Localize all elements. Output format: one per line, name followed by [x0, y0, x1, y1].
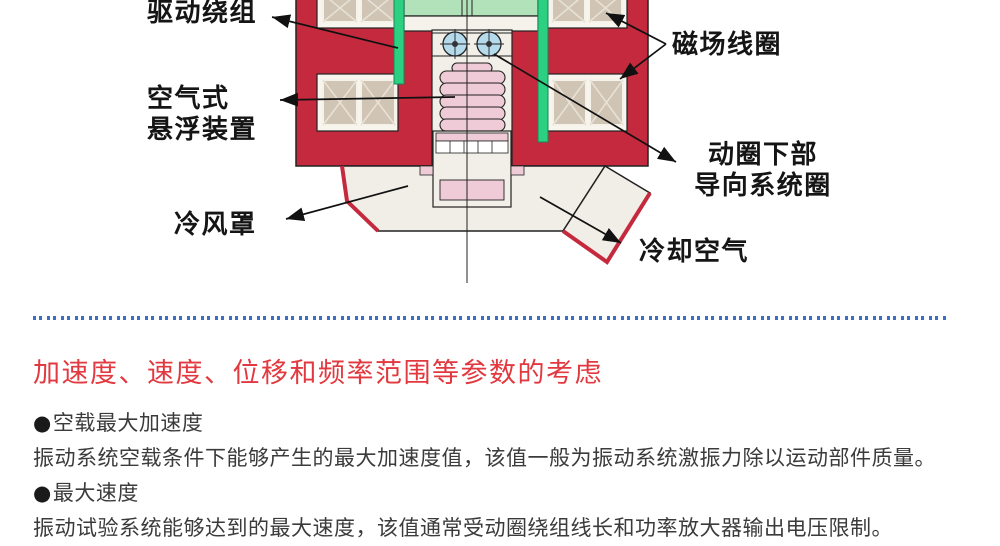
field-coil-box-bottom-right: [547, 74, 627, 131]
bullet-icon: ●: [33, 481, 52, 505]
shaker-diagram-graphic: [0, 0, 1000, 300]
field-coil-box-top-right: [546, 0, 627, 28]
drive-winding-strip-right: [538, 0, 548, 142]
bullet-icon: ●: [33, 411, 52, 435]
label-guide-system-line1: 动圈下部: [692, 140, 834, 171]
field-coil-box-bottom-left: [317, 74, 398, 131]
label-guide-system-line2: 导向系统圈: [692, 171, 834, 202]
item-title-max-velocity: ●最大速度: [33, 476, 968, 511]
label-drive-winding: 驱动绕组: [147, 0, 257, 29]
parameters-section: 加速度、速度、位移和频率范围等参数的考虑 ●空载最大加速度 振动系统空载条件下能…: [33, 356, 968, 546]
shaker-table: [404, 0, 538, 31]
section-heading: 加速度、速度、位移和频率范围等参数的考虑: [33, 356, 968, 392]
item-body-max-velocity: 振动试验系统能够达到的最大速度，该值通常受动圈绕组线长和功率放大器输出电压限制。: [33, 511, 968, 546]
label-guide-system: 动圈下部 导向系统圈: [692, 140, 834, 202]
label-field-coil: 磁场线圈: [672, 30, 782, 61]
drive-winding-strip-left: [394, 0, 404, 84]
label-air-suspension-line2: 悬浮装置: [147, 115, 257, 146]
label-air-suspension: 空气式 悬浮装置: [147, 84, 257, 146]
label-cooling-air: 冷却空气: [639, 237, 749, 268]
item-body-max-acceleration: 振动系统空载条件下能够产生的最大加速度值，该值一般为振动系统激振力除以运动部件质…: [33, 441, 968, 476]
label-air-suspension-line1: 空气式: [147, 84, 257, 115]
item-title-max-acceleration: ●空载最大加速度: [33, 406, 968, 441]
page: 驱动绕组 空气式 悬浮装置 冷风罩 磁场线圈 动圈下部 导向系统圈 冷却空气 加…: [0, 0, 1000, 546]
moving-coil-lower-column: [420, 131, 524, 207]
dotted-divider: [33, 316, 949, 320]
shaker-cross-section-diagram: 驱动绕组 空气式 悬浮装置 冷风罩 磁场线圈 动圈下部 导向系统圈 冷却空气: [0, 0, 1000, 300]
item-title-text: 最大速度: [53, 481, 139, 505]
field-coil-box-top-left: [317, 0, 398, 28]
label-cooling-hood: 冷风罩: [174, 210, 257, 241]
item-title-text: 空载最大加速度: [53, 411, 204, 435]
